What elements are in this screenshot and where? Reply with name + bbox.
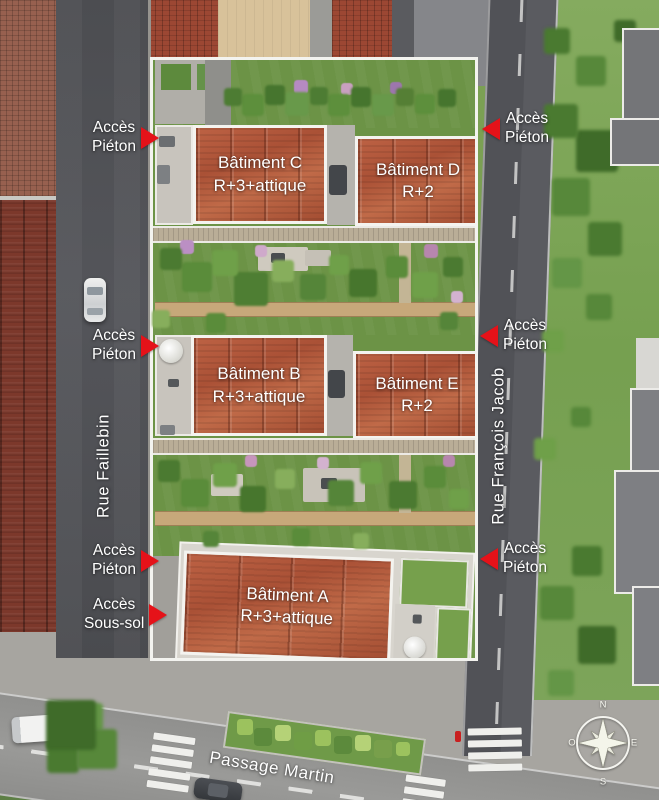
- building-name: Bâtiment B: [217, 363, 300, 385]
- building-b: Bâtiment B R+3+attique: [191, 335, 327, 436]
- access-line2: Piéton: [503, 336, 547, 355]
- crosswalk: [402, 774, 446, 800]
- building-floors: R+2: [401, 395, 433, 417]
- building-floors: R+2: [402, 181, 434, 203]
- access-marker-pieton-left-bottom: Accès Piéton: [92, 542, 159, 580]
- street-label-rue-faillebin: Rue Faillebin: [95, 414, 114, 518]
- existing-building: [622, 28, 659, 124]
- scooter: [455, 731, 461, 742]
- access-marker-pieton-right-middle: Accès Piéton: [480, 317, 547, 355]
- compass-star-icon: [574, 714, 632, 772]
- compass-west: O: [568, 738, 575, 749]
- car-rear-window: [87, 308, 103, 315]
- deck-table: [413, 614, 422, 623]
- building-name: Bâtiment A: [246, 583, 329, 608]
- access-line1: Accès: [504, 317, 546, 336]
- crosswalk: [468, 728, 523, 772]
- access-marker-pieton-right-bottom: Accès Piéton: [480, 540, 547, 578]
- existing-building: [632, 586, 659, 686]
- access-line1: Accès: [93, 119, 135, 138]
- boardwalk: [153, 226, 478, 243]
- building-c: Bâtiment C R+3+attique: [193, 125, 327, 224]
- building-floors: R+3+attique: [213, 386, 306, 408]
- building-a: Bâtiment A R+3+attique: [180, 551, 394, 661]
- left-neighbor-roof: [0, 0, 58, 200]
- access-line2: Piéton: [503, 559, 547, 578]
- access-label: Accès Sous-sol: [84, 596, 144, 634]
- building-name: Bâtiment D: [376, 159, 460, 181]
- building-e: Bâtiment E R+2: [353, 351, 478, 439]
- building-floors: R+3+attique: [240, 605, 333, 631]
- lawn-square: [161, 64, 191, 90]
- access-line2: Piéton: [92, 346, 136, 365]
- access-line2: Piéton: [92, 561, 136, 580]
- footpath: [636, 338, 659, 394]
- boardwalk: [153, 438, 478, 455]
- green-roof: [435, 607, 471, 661]
- access-label: Accès Piéton: [503, 540, 547, 578]
- building-name: Bâtiment E: [375, 373, 458, 395]
- building-name: Bâtiment C: [218, 152, 302, 174]
- patio-table: [271, 253, 285, 263]
- access-marker-pieton-left-middle: Accès Piéton: [92, 327, 159, 365]
- car: [84, 278, 106, 322]
- crosswalk: [146, 732, 195, 792]
- access-line1: Accès: [506, 110, 548, 129]
- gravel-connector: [399, 455, 411, 513]
- building-a-label: Bâtiment A R+3+attique: [183, 554, 391, 660]
- compass-east: E: [631, 738, 637, 749]
- building-a-platform: Bâtiment A R+3+attique: [177, 543, 473, 661]
- car-roof: [207, 783, 229, 799]
- access-line1: Accès: [93, 327, 135, 346]
- terrace-lounge: [157, 165, 170, 184]
- development-site: Bâtiment C R+3+attique Bâtiment D R+2 Bâ…: [150, 57, 478, 661]
- patio: [211, 474, 243, 496]
- site-plan-aerial-view: Bâtiment C R+3+attique Bâtiment D R+2 Bâ…: [0, 0, 659, 800]
- patio: [305, 250, 331, 266]
- access-line2: Piéton: [505, 129, 549, 148]
- access-arrow-left-icon: [482, 118, 500, 140]
- building-d-label: Bâtiment D R+2: [358, 139, 478, 223]
- access-label: Accès Piéton: [505, 110, 549, 148]
- patio-table: [321, 478, 337, 489]
- access-marker-sous-sol: Accès Sous-sol: [84, 596, 167, 634]
- entry-walk: [205, 60, 231, 126]
- access-label: Accès Piéton: [92, 327, 136, 365]
- compass-south: S: [600, 777, 606, 788]
- van: [11, 715, 55, 744]
- green-roof: [399, 558, 469, 609]
- courtyard-table: [329, 165, 347, 195]
- access-label: Accès Piéton: [92, 542, 136, 580]
- gravel-path: [155, 302, 478, 317]
- access-arrow-right-icon: [149, 604, 167, 626]
- courtyard-table: [328, 370, 345, 398]
- access-line1: Accès: [93, 596, 135, 615]
- parasol: [159, 339, 183, 363]
- access-marker-pieton-left-top: Accès Piéton: [92, 119, 159, 157]
- gravel-connector: [399, 243, 411, 303]
- street-label-rue-francois-jacob: Rue François Jacob: [490, 367, 509, 525]
- access-line2: Sous-sol: [84, 615, 144, 634]
- access-label: Accès Piéton: [92, 119, 136, 157]
- compass-rose: N O E S: [570, 698, 636, 790]
- access-line2: Piéton: [92, 138, 136, 157]
- terrace-furniture: [159, 136, 175, 147]
- existing-building: [614, 470, 659, 594]
- compass-north: N: [600, 700, 607, 711]
- access-arrow-right-icon: [141, 127, 159, 149]
- existing-building: [610, 118, 659, 166]
- access-arrow-left-icon: [480, 548, 498, 570]
- building-e-label: Bâtiment E R+2: [356, 354, 478, 436]
- access-marker-pieton-right-top: Accès Piéton: [482, 110, 549, 148]
- access-arrow-right-icon: [141, 335, 159, 357]
- building-d: Bâtiment D R+2: [355, 136, 478, 226]
- terrace-table: [168, 379, 179, 387]
- access-label: Accès Piéton: [503, 317, 547, 355]
- access-arrow-left-icon: [480, 325, 498, 347]
- building-c-label: Bâtiment C R+3+attique: [196, 128, 324, 221]
- building-floors: R+3+attique: [214, 175, 307, 197]
- access-line1: Accès: [504, 540, 546, 559]
- car-windshield: [87, 287, 103, 295]
- building-b-label: Bâtiment B R+3+attique: [194, 338, 324, 433]
- access-line1: Accès: [93, 542, 135, 561]
- terrace-lounge: [160, 425, 175, 435]
- access-arrow-right-icon: [141, 550, 159, 572]
- gravel-path: [155, 511, 478, 526]
